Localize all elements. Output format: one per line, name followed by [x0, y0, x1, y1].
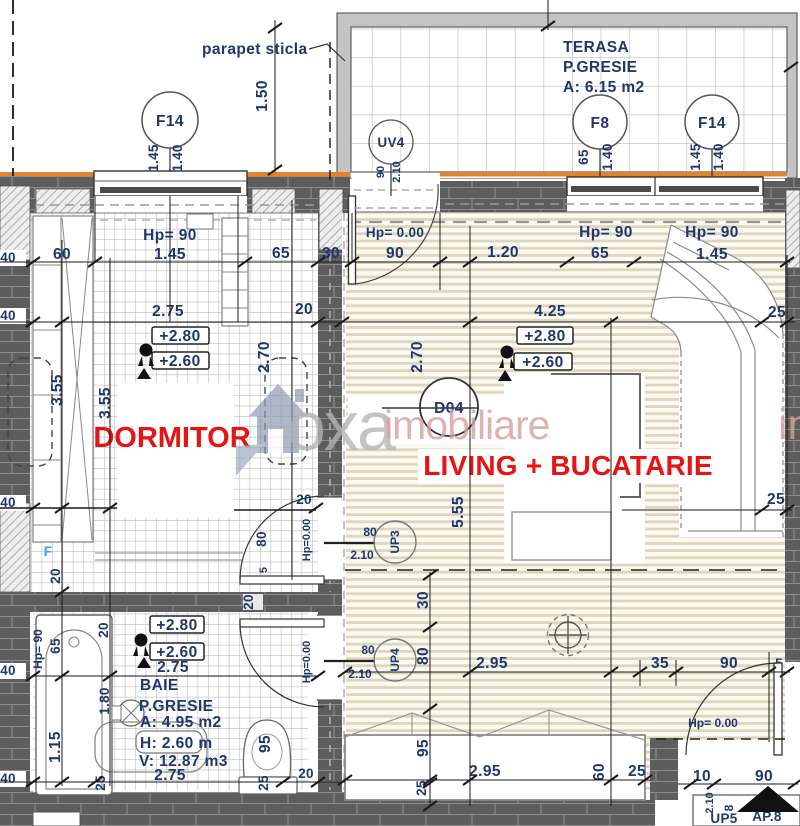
svg-text:UP5: UP5: [710, 811, 737, 826]
svg-text:20: 20: [48, 568, 63, 584]
svg-text:1.40: 1.40: [170, 144, 185, 171]
svg-text:P.GRESIE: P.GRESIE: [563, 59, 637, 76]
svg-text:80: 80: [363, 525, 377, 539]
svg-text:Hp= 90: Hp= 90: [579, 224, 633, 241]
svg-text:20: 20: [96, 622, 111, 638]
svg-text:A: 6.15 m2: A: 6.15 m2: [563, 79, 645, 96]
svg-text:P.GRESIE: P.GRESIE: [139, 698, 213, 715]
svg-text:2.10: 2.10: [391, 161, 403, 182]
svg-text:40: 40: [0, 771, 16, 786]
svg-text:imobiliare: imobiliare: [384, 402, 549, 448]
svg-text:Hp= 90: Hp= 90: [685, 224, 739, 241]
svg-text:40: 40: [0, 308, 16, 323]
svg-text:65: 65: [48, 638, 63, 654]
svg-text:1.50: 1.50: [254, 80, 271, 112]
svg-text:1.45: 1.45: [696, 246, 728, 263]
svg-text:1.45: 1.45: [146, 144, 161, 172]
svg-text:2.10: 2.10: [348, 667, 372, 681]
svg-text:80: 80: [361, 643, 375, 657]
svg-text:2.75: 2.75: [152, 303, 184, 320]
svg-text:in: in: [778, 401, 800, 449]
svg-text:30: 30: [322, 245, 340, 262]
svg-text:25: 25: [767, 491, 785, 508]
svg-text:4.25: 4.25: [534, 303, 566, 320]
svg-text:F14: F14: [698, 115, 726, 132]
svg-text:Hp=0.00: Hp=0.00: [301, 641, 313, 684]
svg-text:UP4: UP4: [388, 648, 402, 672]
svg-text:Hp=0.00: Hp=0.00: [301, 519, 313, 562]
svg-text:Hp= 0.00: Hp= 0.00: [688, 716, 738, 730]
svg-text:1.40: 1.40: [600, 143, 615, 170]
svg-text:+2.80: +2.80: [159, 328, 200, 345]
svg-text:1.40: 1.40: [711, 143, 726, 170]
svg-text:20: 20: [241, 594, 256, 610]
svg-text:40: 40: [0, 250, 16, 265]
svg-text:2.95: 2.95: [476, 655, 508, 672]
svg-text:2.75: 2.75: [154, 767, 186, 784]
svg-text:25: 25: [768, 304, 786, 321]
svg-text:UP3: UP3: [388, 530, 402, 554]
svg-text:3.55: 3.55: [49, 374, 66, 406]
svg-text:UV4: UV4: [377, 135, 404, 150]
svg-text:80: 80: [415, 647, 432, 665]
svg-text:30: 30: [415, 591, 432, 609]
svg-text:parapet sticla: parapet sticla: [202, 41, 308, 58]
svg-text:65: 65: [576, 149, 591, 165]
svg-text:80: 80: [254, 531, 269, 547]
svg-text:90: 90: [375, 166, 387, 178]
svg-text:35: 35: [651, 655, 669, 672]
svg-text:2.70: 2.70: [256, 341, 273, 373]
svg-text:5.55: 5.55: [450, 496, 467, 528]
svg-text:+2.60: +2.60: [159, 353, 200, 370]
svg-text:20: 20: [295, 301, 313, 318]
svg-text:40: 40: [0, 663, 16, 678]
svg-text:Hp= 90: Hp= 90: [31, 629, 45, 669]
svg-text:LIVING + BUCATARIE: LIVING + BUCATARIE: [423, 450, 713, 481]
svg-text:F14: F14: [156, 113, 184, 130]
svg-text:25: 25: [628, 763, 646, 780]
svg-text:90: 90: [720, 655, 738, 672]
svg-text:2.10: 2.10: [350, 548, 374, 562]
svg-text:20: 20: [298, 766, 314, 781]
svg-text:25: 25: [256, 775, 271, 791]
svg-text:20: 20: [296, 492, 312, 507]
svg-text:3.55: 3.55: [97, 387, 114, 419]
svg-text:+2.80: +2.80: [524, 328, 565, 345]
svg-text:BAIE: BAIE: [140, 677, 179, 694]
svg-text:65: 65: [591, 245, 609, 262]
svg-text:1.20: 1.20: [487, 244, 519, 261]
svg-text:+2.60: +2.60: [522, 354, 563, 371]
svg-text:10: 10: [693, 768, 711, 785]
svg-text:90: 90: [755, 768, 773, 785]
svg-text:2.75: 2.75: [157, 659, 189, 676]
svg-text:oxa: oxa: [287, 387, 396, 465]
svg-text:F8: F8: [591, 115, 610, 132]
svg-text:Hp= 0.00: Hp= 0.00: [366, 225, 424, 240]
svg-text:2.70: 2.70: [409, 341, 426, 373]
svg-text:H: 2.60 m: H: 2.60 m: [140, 735, 213, 752]
svg-text:+2.80: +2.80: [156, 617, 197, 634]
svg-text:DORMITOR: DORMITOR: [93, 422, 250, 454]
svg-text:5: 5: [258, 567, 270, 573]
svg-text:A: 4.95 m2: A: 4.95 m2: [140, 714, 222, 731]
svg-text:1.45: 1.45: [688, 143, 703, 171]
svg-text:95: 95: [257, 735, 274, 753]
svg-text:TERASA: TERASA: [563, 39, 629, 56]
svg-text:65: 65: [272, 245, 290, 262]
svg-text:F: F: [44, 543, 53, 559]
svg-text:95: 95: [415, 739, 432, 757]
svg-text:1.15: 1.15: [47, 731, 64, 763]
svg-text:60: 60: [591, 763, 608, 781]
svg-text:90: 90: [386, 245, 404, 262]
